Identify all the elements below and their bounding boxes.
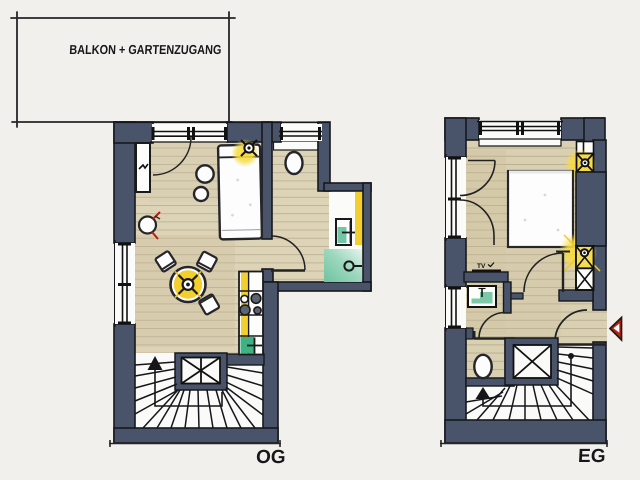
svg-text:BALKON + GARTENZUGANG: BALKON + GARTENZUGANG bbox=[69, 42, 222, 57]
svg-text:EG: EG bbox=[578, 446, 607, 467]
svg-text:OG: OG bbox=[255, 447, 286, 468]
svg-text:TV: TV bbox=[477, 263, 486, 270]
